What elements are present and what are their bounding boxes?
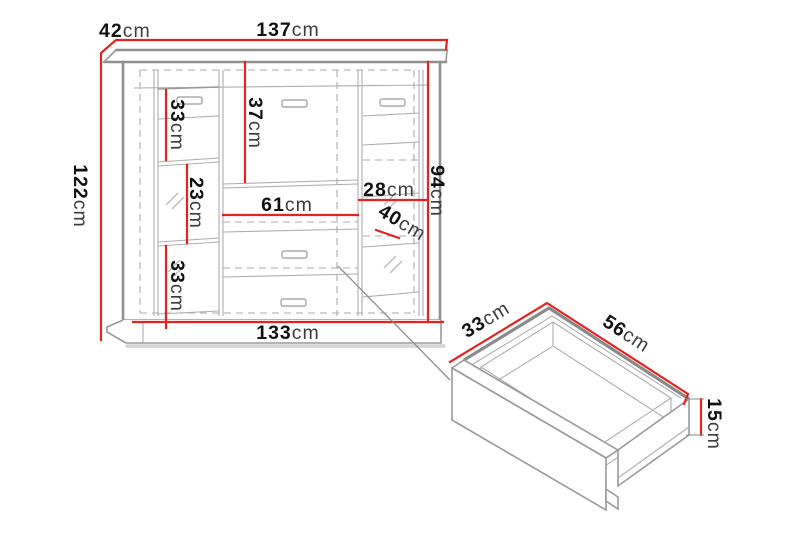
- dim-label-right-width: 28cm: [363, 179, 415, 201]
- diagram-canvas: 137cm 42cm 122cm 133cm 94cm 33cm 23cm 33…: [0, 0, 800, 533]
- handle-icon: [281, 299, 306, 306]
- cabinet-top-board: [104, 50, 447, 62]
- dim-label-left-middle-section: 23cm: [185, 177, 207, 229]
- dim-label-bottom-width: 133cm: [256, 322, 320, 344]
- handle-icon: [282, 100, 307, 107]
- dim-label-top-width: 137cm: [256, 19, 320, 41]
- dim-label-left-top-section: 33cm: [166, 99, 188, 151]
- dim-label-middle-top-section: 37cm: [244, 97, 266, 149]
- drawer-side-panel: [618, 399, 689, 486]
- dim-label-left-bottom-section: 33cm: [166, 260, 188, 312]
- furniture-dimension-diagram: 137cm 42cm 122cm 133cm 94cm 33cm 23cm 33…: [0, 0, 800, 533]
- handle-icon: [380, 99, 405, 106]
- cabinet-front-view: 137cm 42cm 122cm 133cm 94cm 33cm 23cm 33…: [69, 19, 448, 346]
- drawer-detail-view: 33cm 56cm 15cm: [450, 297, 725, 510]
- dim-label-left-height: 122cm: [69, 164, 91, 228]
- dim-label-right-shelf-spacing: 40cm: [374, 200, 430, 245]
- handle-icon: [282, 251, 307, 258]
- dim-label-right-height: 94cm: [426, 165, 448, 217]
- dim-label-middle-width: 61cm: [261, 194, 313, 216]
- dim-label-top-depth: 42cm: [99, 20, 151, 42]
- dim-label-drawer-height: 15cm: [703, 398, 725, 450]
- drawer-runner-foot: [606, 489, 618, 509]
